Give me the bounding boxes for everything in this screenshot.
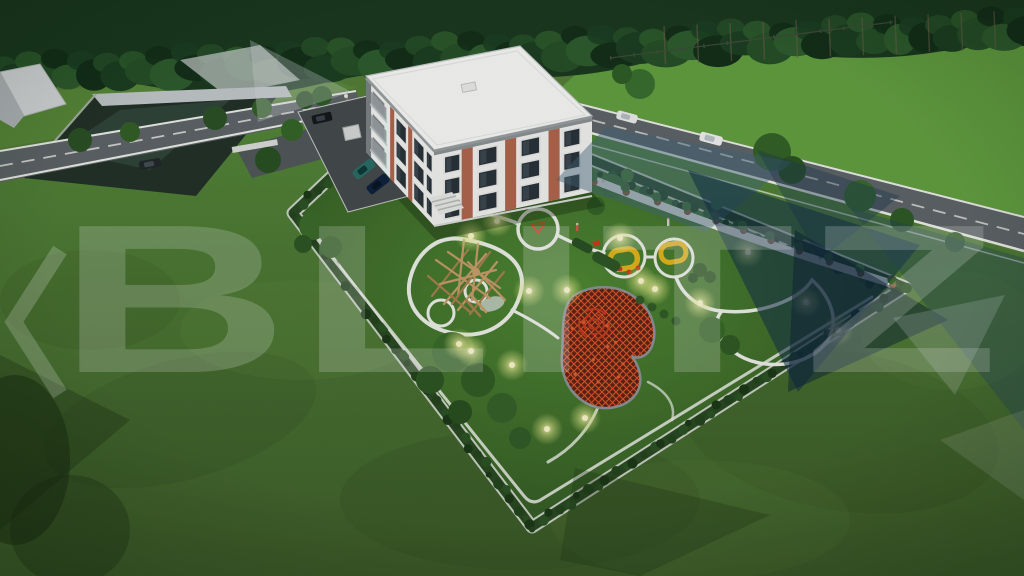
vignette <box>0 0 1024 576</box>
aerial-render: BLITZ <box>0 0 1024 576</box>
render-canvas: BLITZ <box>0 0 1024 576</box>
